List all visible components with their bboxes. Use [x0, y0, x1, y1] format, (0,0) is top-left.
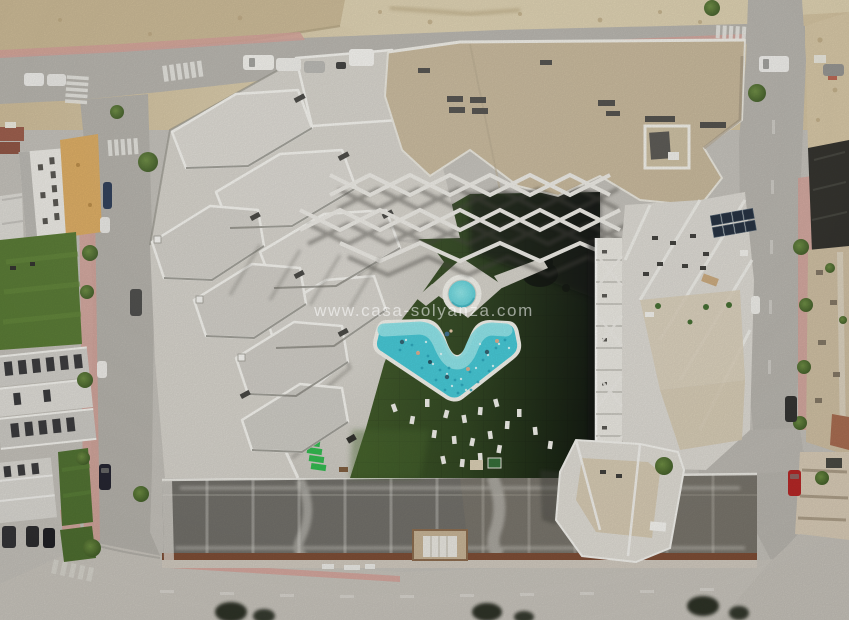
light-haze — [0, 0, 849, 620]
aerial-photo: www.casa-solyanza.com — [0, 0, 849, 620]
